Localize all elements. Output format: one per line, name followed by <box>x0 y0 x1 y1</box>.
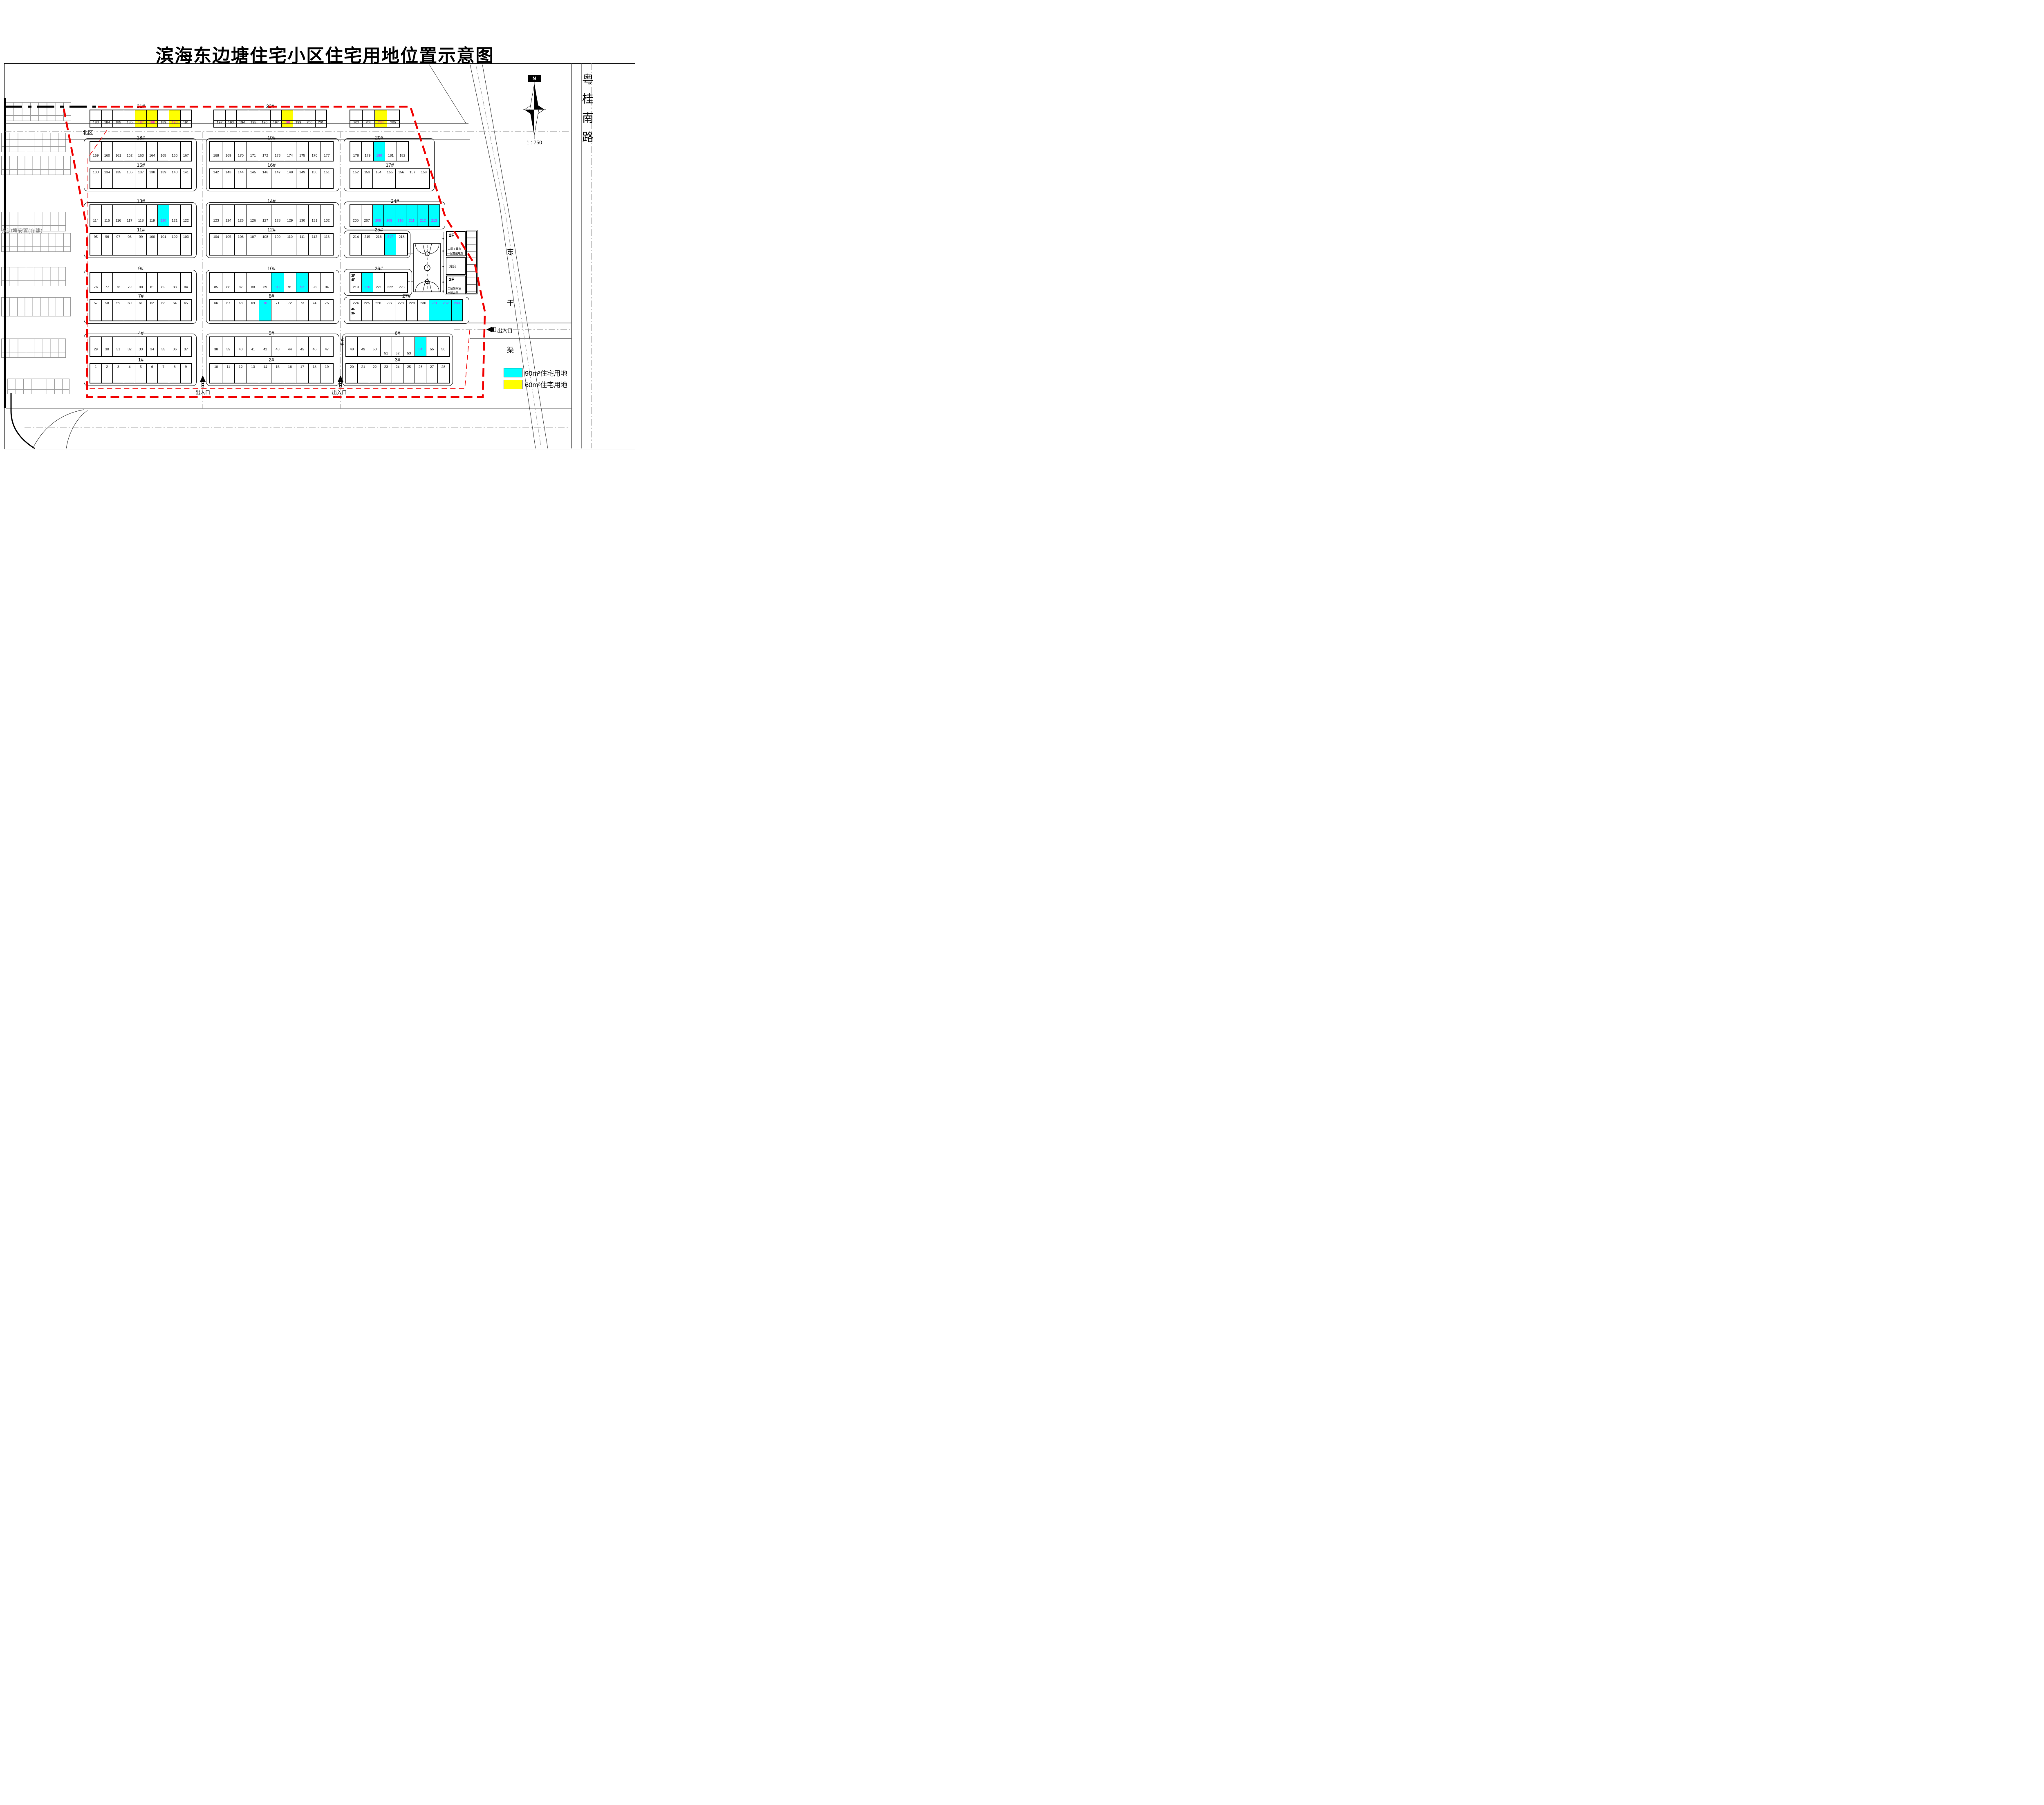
plot-number: 207 <box>361 219 372 222</box>
plot-cell-212: 212 <box>417 205 428 226</box>
plot-number: 163 <box>135 154 146 157</box>
plot-number: 86 <box>222 285 234 289</box>
plot-number: 15 <box>271 365 283 369</box>
plot-cell-37: 37 <box>180 337 192 356</box>
row-label-1: 1# <box>90 357 192 362</box>
left-area-label: 东边塘安置(在建) <box>2 226 43 234</box>
plot-number: 174 <box>284 154 296 157</box>
plot-number: 224 <box>350 301 361 305</box>
plot-cell-108: 108 <box>259 234 271 255</box>
building-row-26: 2193F 4F220221222223 <box>350 272 408 293</box>
plot-cell-177: 177 <box>320 142 333 161</box>
plot-number: 45 <box>296 348 308 351</box>
plot-cell-184: 184 <box>101 110 113 127</box>
building-row-10: 85868788899091929394 <box>209 272 334 293</box>
plot-number: 179 <box>362 154 373 157</box>
row-label-24: 24# <box>350 198 440 204</box>
plot-number: 3 <box>113 365 124 369</box>
plot-number: 158 <box>418 170 429 174</box>
plot-number: 111 <box>296 235 308 239</box>
plot-cell-68: 68 <box>234 300 247 321</box>
plot-number: 189 <box>158 121 169 124</box>
plot-number: 37 <box>181 348 192 351</box>
plot-number: 133 <box>90 170 101 174</box>
plot-number: 132 <box>321 219 333 222</box>
plot-number: 58 <box>102 301 113 305</box>
plot-number: 95 <box>90 235 101 239</box>
plot-cell-27: 27 <box>426 364 437 383</box>
plot-number: 35 <box>158 348 169 351</box>
plot-cell-140: 140 <box>169 169 180 188</box>
plot-number: 170 <box>235 154 247 157</box>
plot-number: 157 <box>407 170 418 174</box>
plot-number: 94 <box>321 285 333 289</box>
plot-number: 228 <box>395 301 406 305</box>
building-row-7: 575859606162636465 <box>90 299 192 321</box>
plot-number: 61 <box>135 301 146 305</box>
plot-number: 54 <box>415 348 426 351</box>
plot-cell-173: 173 <box>271 142 283 161</box>
plot-cell-154: 154 <box>372 169 384 188</box>
existing-building-strip <box>1 233 71 252</box>
plot-cell-59: 59 <box>112 300 124 321</box>
plot-cell-30: 30 <box>101 337 113 356</box>
plot-number: 151 <box>321 170 333 174</box>
plot-cell-72: 72 <box>284 300 296 321</box>
building-row-20: 178179180181182 <box>350 141 409 161</box>
plot-number: 185 <box>113 121 124 124</box>
building-row-24: 206207208209210211212213 <box>350 204 440 227</box>
canal-char-3: 渠 <box>507 344 514 354</box>
plot-number: 154 <box>373 170 384 174</box>
plot-cell-227: 227 <box>384 300 395 321</box>
plot-number: 43 <box>271 348 283 351</box>
plot-cell-86: 86 <box>222 273 234 292</box>
plot-number: 17 <box>296 365 308 369</box>
plot-number: 196 <box>259 121 270 124</box>
plot-cell-134: 134 <box>101 169 113 188</box>
row-label-13: 13# <box>90 198 192 204</box>
plot-cell-186: 186 <box>124 110 135 127</box>
plot-cell-21: 21 <box>357 364 369 383</box>
plot-cell-213: 213 <box>428 205 439 226</box>
north-area-label: 北区 <box>82 128 94 136</box>
plot-number: 230 <box>418 301 429 305</box>
plot-number: 25 <box>403 365 415 369</box>
plot-number: 166 <box>169 154 180 157</box>
plot-number: 162 <box>124 154 135 157</box>
page-title: 滨海东边塘住宅小区住宅用地位置示意图 <box>155 41 495 67</box>
plot-cell-105: 105 <box>222 234 234 255</box>
row-label-14: 14# <box>209 198 334 204</box>
row-label-16: 16# <box>209 162 334 168</box>
plot-cell-41: 41 <box>247 337 259 356</box>
plot-number: 173 <box>271 154 283 157</box>
plot-number: 93 <box>309 285 320 289</box>
plot-cell-193: 193 <box>225 110 237 127</box>
plot-cell-138: 138 <box>146 169 158 188</box>
plot-number: 90 <box>271 285 283 289</box>
plot-number: 155 <box>384 170 395 174</box>
plot-cell-122: 122 <box>180 205 192 226</box>
plot-cell-183: 183 <box>90 110 101 127</box>
plot-number: 70 <box>259 301 271 305</box>
plot-number: 145 <box>247 170 259 174</box>
plot-cell-11: 11 <box>222 364 234 383</box>
row-label-10: 10# <box>209 266 334 271</box>
plot-number: 75 <box>321 301 333 305</box>
plot-number: 159 <box>90 154 101 157</box>
plot-cell-187: 187 <box>135 110 146 127</box>
scale-label: 1 : 750 <box>522 140 547 146</box>
plot-number: 104 <box>210 235 222 239</box>
plot-cell-137: 137 <box>135 169 146 188</box>
plot-number: 55 <box>426 348 437 351</box>
building-row-25: 214215216217218 <box>350 233 408 256</box>
plot-number: 89 <box>259 285 271 289</box>
plot-number: 91 <box>284 285 296 289</box>
plot-number: 57 <box>90 301 101 305</box>
plot-number: 103 <box>181 235 192 239</box>
plot-number: 46 <box>309 348 320 351</box>
plot-number: 217 <box>385 235 396 239</box>
plot-number: 16 <box>284 365 296 369</box>
plot-number: 115 <box>102 219 113 222</box>
plot-cell-128: 128 <box>271 205 283 226</box>
plot-cell-207: 207 <box>361 205 372 226</box>
recreation-line1: 二层娱乐室 <box>448 286 461 290</box>
plot-number: 106 <box>235 235 247 239</box>
plot-number: 182 <box>397 154 408 157</box>
plot-cell-166: 166 <box>169 142 180 161</box>
plot-number: 5 <box>135 365 146 369</box>
row-label-8: 8# <box>209 293 334 298</box>
plot-number: 53 <box>403 352 415 355</box>
plot-cell-97: 97 <box>112 234 124 255</box>
plot-cell-89: 89 <box>259 273 271 292</box>
plot-cell-150: 150 <box>308 169 320 188</box>
plot-cell-78: 78 <box>112 273 124 292</box>
building-row-6: 484950515253545556 <box>345 336 450 357</box>
plot-cell-24: 24 <box>392 364 403 383</box>
plot-cell-114: 114 <box>90 205 101 226</box>
plot-cell-99: 99 <box>135 234 146 255</box>
plot-number: 4 <box>124 365 135 369</box>
plot-number: 161 <box>113 154 124 157</box>
plot-number: 168 <box>210 154 222 157</box>
plot-number: 110 <box>284 235 296 239</box>
plot-cell-95: 95 <box>90 234 101 255</box>
plot-number: 204 <box>375 121 387 124</box>
plot-number: 227 <box>384 301 395 305</box>
plot-number: 138 <box>147 170 158 174</box>
road-right-label: 粤桂南路 <box>582 70 595 147</box>
plot-cell-48: 48 <box>346 337 357 356</box>
plot-number: 220 <box>362 285 373 289</box>
plot-cell-130: 130 <box>296 205 308 226</box>
plot-cell-149: 149 <box>296 169 308 188</box>
plot-cell-45: 45 <box>296 337 308 356</box>
plot-number: 202 <box>350 121 362 124</box>
stage-box: 戏台 <box>446 257 466 275</box>
plot-cell-1: 1 <box>90 364 101 383</box>
row-label-11: 11# <box>90 227 192 232</box>
plot-cell-232: 232 <box>440 300 451 321</box>
plot-number: 221 <box>373 285 384 289</box>
plot-number: 129 <box>284 219 296 222</box>
plot-number: 180 <box>374 154 385 157</box>
plot-number: 56 <box>438 348 449 351</box>
building-row-18: 159160161162163164165166167 <box>90 141 192 161</box>
plot-number: 97 <box>113 235 124 239</box>
plot-cell-74: 74 <box>308 300 320 321</box>
plot-number: 210 <box>395 219 406 222</box>
plot-number: 186 <box>124 121 135 124</box>
plot-cell-119: 119 <box>146 205 158 226</box>
plot-cell-196: 196 <box>259 110 270 127</box>
plot-cell-4: 4 <box>124 364 135 383</box>
plot-cell-35: 35 <box>157 337 169 356</box>
plot-number: 119 <box>147 219 158 222</box>
plot-cell-162: 162 <box>124 142 135 161</box>
plot-cell-167: 167 <box>180 142 192 161</box>
plot-number: 232 <box>440 301 451 305</box>
plot-number: 63 <box>158 301 169 305</box>
plot-cell-158: 158 <box>418 169 429 188</box>
plot-number: 197 <box>271 121 282 124</box>
plot-number: 113 <box>321 235 333 239</box>
plot-cell-96: 96 <box>101 234 113 255</box>
plot-number: 214 <box>350 235 361 239</box>
plot-number: 101 <box>158 235 169 239</box>
existing-building-strip <box>1 267 66 286</box>
plot-cell-106: 106 <box>234 234 247 255</box>
plot-number: 211 <box>406 219 417 222</box>
plot-number: 21 <box>358 365 369 369</box>
plot-cell-121: 121 <box>169 205 180 226</box>
plot-number: 125 <box>235 219 247 222</box>
plot-cell-116: 116 <box>112 205 124 226</box>
plot-number: 123 <box>210 219 222 222</box>
plot-number: 32 <box>124 348 135 351</box>
plot-number: 178 <box>350 154 361 157</box>
plot-cell-98: 98 <box>124 234 135 255</box>
plot-cell-209: 209 <box>383 205 394 226</box>
plot-number: 67 <box>222 301 234 305</box>
recreation-floors: 2F <box>449 277 454 282</box>
plot-number: 200 <box>304 121 315 124</box>
plot-cell-20: 20 <box>346 364 357 383</box>
plot-number: 188 <box>147 121 158 124</box>
plot-cell-8: 8 <box>169 364 180 383</box>
plot-cell-132: 132 <box>320 205 333 226</box>
plot-cell-84: 84 <box>180 273 192 292</box>
plot-number: 1 <box>90 365 101 369</box>
plot-number: 84 <box>181 285 192 289</box>
plot-cell-136: 136 <box>124 169 135 188</box>
row-label-15: 15# <box>90 162 192 168</box>
plot-number: 18 <box>309 365 320 369</box>
plot-number: 212 <box>417 219 428 222</box>
plot-number: 78 <box>113 285 124 289</box>
plot-number: 171 <box>247 154 259 157</box>
plot-cell-172: 172 <box>259 142 271 161</box>
plot-number: 81 <box>147 285 158 289</box>
plot-cell-50: 50 <box>369 337 380 356</box>
plot-cell-199: 199 <box>293 110 304 127</box>
plot-cell-170: 170 <box>234 142 247 161</box>
plot-number: 137 <box>135 170 146 174</box>
plot-cell-160: 160 <box>101 142 113 161</box>
plot-number: 231 <box>429 301 440 305</box>
building-row-11: 9596979899100101102103 <box>90 233 192 256</box>
plot-number: 136 <box>124 170 135 174</box>
plot-cell-83: 83 <box>169 273 180 292</box>
plot-number: 92 <box>296 285 308 289</box>
plot-number: 30 <box>102 348 113 351</box>
recreation-box: 2F二层娱乐室一层公厕 <box>446 276 466 294</box>
building-row-2: 10111213141516171819 <box>209 363 334 383</box>
plot-number: 64 <box>169 301 180 305</box>
plot-number: 172 <box>259 154 271 157</box>
plot-number: 109 <box>271 235 283 239</box>
row-label-12: 12# <box>209 227 334 232</box>
plot-number: 77 <box>102 285 113 289</box>
row-label-19: 19# <box>209 135 334 140</box>
plot-cell-91: 91 <box>284 273 296 292</box>
building-row-8: 66676869707172737475 <box>209 299 334 321</box>
plot-cell-15: 15 <box>271 364 283 383</box>
plot-cell-118: 118 <box>135 205 146 226</box>
plot-cell-146: 146 <box>259 169 271 188</box>
plot-number: 160 <box>102 154 113 157</box>
plot-cell-223: 223 <box>396 273 407 292</box>
row-label-4: 4# <box>90 330 192 336</box>
plot-number: 208 <box>373 219 383 222</box>
plot-number: 144 <box>235 170 247 174</box>
plot-number: 98 <box>124 235 135 239</box>
plot-cell-19: 19 <box>320 364 333 383</box>
plot-number: 33 <box>135 348 146 351</box>
plot-cell-100: 100 <box>146 234 158 255</box>
plot-number: 140 <box>169 170 180 174</box>
plot-cell-28: 28 <box>437 364 449 383</box>
canal-char-2: 干 <box>507 297 514 307</box>
plot-number: 175 <box>296 154 308 157</box>
plot-cell-12: 12 <box>234 364 247 383</box>
plot-cell-129: 129 <box>284 205 296 226</box>
building-row-16: 142143144145146147148149150151 <box>209 168 334 189</box>
plot-number: 22 <box>369 365 380 369</box>
plot-number: 165 <box>158 154 169 157</box>
building-row-4: 293031323334353637 <box>90 336 192 357</box>
site-plan-canvas: 滨海东边塘住宅小区住宅用地位置示意图 N 90m²住宅用地 60m²住宅用地 2… <box>0 0 638 451</box>
row-label-7: 7# <box>90 293 192 298</box>
plot-number: 24 <box>392 365 403 369</box>
plot-cell-151: 151 <box>320 169 333 188</box>
plot-number: 194 <box>237 121 248 124</box>
plot-number: 226 <box>373 301 384 305</box>
row-label-3: 3# <box>345 357 450 362</box>
row-label-26: 26# <box>350 266 408 271</box>
plot-cell-175: 175 <box>296 142 308 161</box>
plot-cell-194: 194 <box>236 110 248 127</box>
plot-cell-165: 165 <box>157 142 169 161</box>
plot-number: 141 <box>181 170 192 174</box>
plot-number: 223 <box>396 285 407 289</box>
plot-number: 88 <box>247 285 259 289</box>
plot-number: 128 <box>271 219 283 222</box>
plot-cell-124: 124 <box>222 205 234 226</box>
plot-number: 79 <box>124 285 135 289</box>
plot-number: 73 <box>296 301 308 305</box>
plot-cell-71: 71 <box>271 300 283 321</box>
plot-number: 190 <box>169 121 180 124</box>
plot-cell-220: 220 <box>361 273 373 292</box>
building-row-21: 183184185186187188189190191 <box>90 110 192 128</box>
plot-cell-58: 58 <box>101 300 113 321</box>
plot-number: 62 <box>147 301 158 305</box>
plot-cell-16: 16 <box>284 364 296 383</box>
plot-cell-210: 210 <box>395 205 406 226</box>
plot-cell-73: 73 <box>296 300 308 321</box>
plot-cell-131: 131 <box>308 205 320 226</box>
entrance-label-1: 出入口 <box>195 389 210 396</box>
row-label-20: 20# <box>350 135 409 140</box>
building-row-23: 202203204205 <box>350 110 400 128</box>
plot-number: 41 <box>247 348 259 351</box>
plot-cell-111: 111 <box>296 234 308 255</box>
plot-number: 149 <box>296 170 308 174</box>
plot-cell-205: 205 <box>387 110 399 127</box>
plot-number: 215 <box>362 235 373 239</box>
plot-cell-42: 42 <box>259 337 271 356</box>
plot-number: 153 <box>362 170 373 174</box>
plot-cell-29: 29 <box>90 337 101 356</box>
plot-cell-174: 174 <box>284 142 296 161</box>
plot-number: 135 <box>113 170 124 174</box>
plot-number: 105 <box>222 235 234 239</box>
plot-number: 2 <box>102 365 113 369</box>
plot-cell-157: 157 <box>407 169 418 188</box>
plot-cell-171: 171 <box>247 142 259 161</box>
plot-number: 44 <box>284 348 296 351</box>
plot-cell-231: 231 <box>429 300 440 321</box>
plot-cell-34: 34 <box>146 337 158 356</box>
plot-cell-164: 164 <box>146 142 158 161</box>
plot-cell-36: 36 <box>169 337 180 356</box>
plot-cell-67: 67 <box>222 300 234 321</box>
plot-number: 83 <box>169 285 180 289</box>
plot-number: 225 <box>362 301 373 305</box>
plot-cell-80: 80 <box>135 273 146 292</box>
plot-cell-101: 101 <box>157 234 169 255</box>
plot-cell-190: 190 <box>169 110 180 127</box>
plot-cell-179: 179 <box>361 142 373 161</box>
row-label-2: 2# <box>209 357 334 362</box>
plot-cell-125: 125 <box>234 205 247 226</box>
plot-number: 80 <box>135 285 146 289</box>
plot-number: 120 <box>158 219 169 222</box>
plot-cell-197: 197 <box>270 110 282 127</box>
plot-number: 11 <box>222 365 234 369</box>
plot-number: 183 <box>90 121 101 124</box>
plot-cell-230: 230 <box>417 300 429 321</box>
plot-number: 142 <box>210 170 222 174</box>
plot-number: 59 <box>113 301 124 305</box>
building-row-22: 192193194195196197198199200201 <box>213 110 327 128</box>
plot-number: 108 <box>259 235 271 239</box>
